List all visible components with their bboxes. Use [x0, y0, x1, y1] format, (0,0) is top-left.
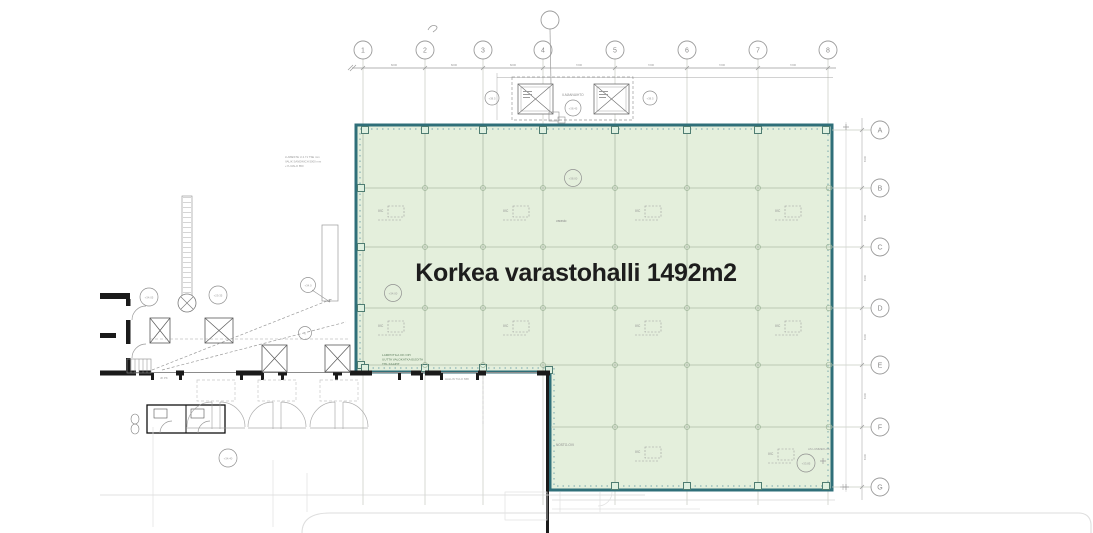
grid-bubble-label: B [878, 186, 883, 193]
dimension-text: 6000 [391, 63, 398, 67]
grid-bubble-label: 5 [613, 48, 617, 55]
grid-side: A B C D E F G 8100 8100 8100 8100 8100 8… [843, 118, 889, 500]
corridor-ref-label: 6 [304, 332, 306, 336]
note-left: +YLIVALO 850 [285, 164, 304, 168]
dimension-text: 8100 [863, 453, 867, 460]
grid-bubble-label: D [877, 306, 882, 313]
dimension-text: 6000 [451, 63, 458, 67]
grid-top: 1 2 3 4 5 6 7 8 6000 6000 6000 7200 7200… [348, 11, 837, 120]
grid-bubble-label: E [878, 363, 883, 370]
dimension-text: 8100 [863, 155, 867, 162]
grid-bubble-label: 1 [361, 48, 365, 55]
room-note: JK PK [160, 376, 168, 380]
door-note: NOSTO-OVI [556, 443, 574, 447]
note-green: UUTTA VALOKATKAISIJOITA [382, 358, 424, 362]
grid-bubble-label: 8 [826, 48, 830, 55]
grid-bubble-label: G [877, 485, 882, 492]
grid-bubble-label: C [877, 245, 882, 252]
elevation-label: +34.05 [145, 296, 154, 300]
note-green: THL KAAPIT [382, 362, 400, 366]
note-left: LUMIESTE U 4.71 TSE mm [285, 155, 320, 159]
elevation-label: +34.00 [389, 292, 398, 296]
elevation-label: +38.00 [569, 177, 578, 181]
grid-bubble-label: A [878, 128, 883, 135]
page-corner-line [302, 513, 1091, 533]
room-label: varasto [556, 219, 567, 223]
dimension-text: 8100 [863, 274, 867, 281]
svg-text:IVC: IVC [635, 324, 641, 328]
grid-bubble-label: 3 [481, 48, 485, 55]
note-green: LAMPOTILA OK OPI [382, 353, 411, 357]
elevation-label: +34.0 [304, 284, 312, 288]
svg-text:IVC: IVC [378, 324, 384, 328]
svg-text:IVC: IVC [768, 452, 774, 456]
elevation-label: +38.45 [569, 107, 578, 111]
roof-units: ILMANVAIHTO +38.45 +38.5 +38.5 [485, 77, 657, 123]
wall-note: HALLIN TULO S58 [445, 377, 469, 381]
dimension-text: 8100 [863, 392, 867, 399]
dimension-text: 7200 [648, 63, 655, 67]
area-highlight-label: Korkea varastohalli 1492m2 [415, 259, 737, 287]
dimension-text: 7200 [790, 63, 797, 67]
dimension-text: 8100 [863, 214, 867, 221]
note-left: VALIK SANDWICH 5000 mm [285, 160, 322, 164]
svg-text:IVC: IVC [775, 209, 781, 213]
elevation-label: +29.35 [214, 294, 223, 298]
roof-center-label: ILMANVAIHTO [562, 93, 584, 97]
svg-text:IVC: IVC [503, 209, 509, 213]
svg-text:IVC: IVC [635, 450, 641, 454]
elevation-label: +38.5 [646, 97, 654, 101]
grid-bubble-label: 7 [756, 48, 760, 55]
grid-bubble-label: 6 [685, 48, 689, 55]
floor-plan-drawing: 1 2 3 4 5 6 7 8 6000 6000 6000 7200 7200… [0, 0, 1093, 533]
svg-text:IVC: IVC [503, 324, 509, 328]
grid-bubble-label: 2 [423, 48, 427, 55]
svg-text:IVC: IVC [775, 324, 781, 328]
dimension-text: 8100 [863, 333, 867, 340]
grid-bubble-label: F [878, 425, 882, 432]
elevation-label: +38.5 [488, 97, 496, 101]
dimension-text: 7200 [576, 63, 583, 67]
grid-bubble-label: 4 [541, 48, 545, 55]
dimension-text: 6000 [510, 63, 517, 67]
svg-text:IVC: IVC [635, 209, 641, 213]
svg-text:IVC: IVC [378, 209, 384, 213]
shaft-box [150, 318, 350, 372]
grid-aux-bubble [541, 11, 559, 29]
elevation-label: +33.85 [802, 462, 811, 466]
dimension-text: 7200 [719, 63, 726, 67]
floor-plan-page: 1 2 3 4 5 6 7 8 6000 6000 6000 7200 7200… [0, 0, 1093, 533]
elevation-label: +34.40 [224, 457, 233, 461]
dock-note: AS LUMMEKUJA [808, 447, 830, 451]
loading-doors [187, 376, 483, 429]
